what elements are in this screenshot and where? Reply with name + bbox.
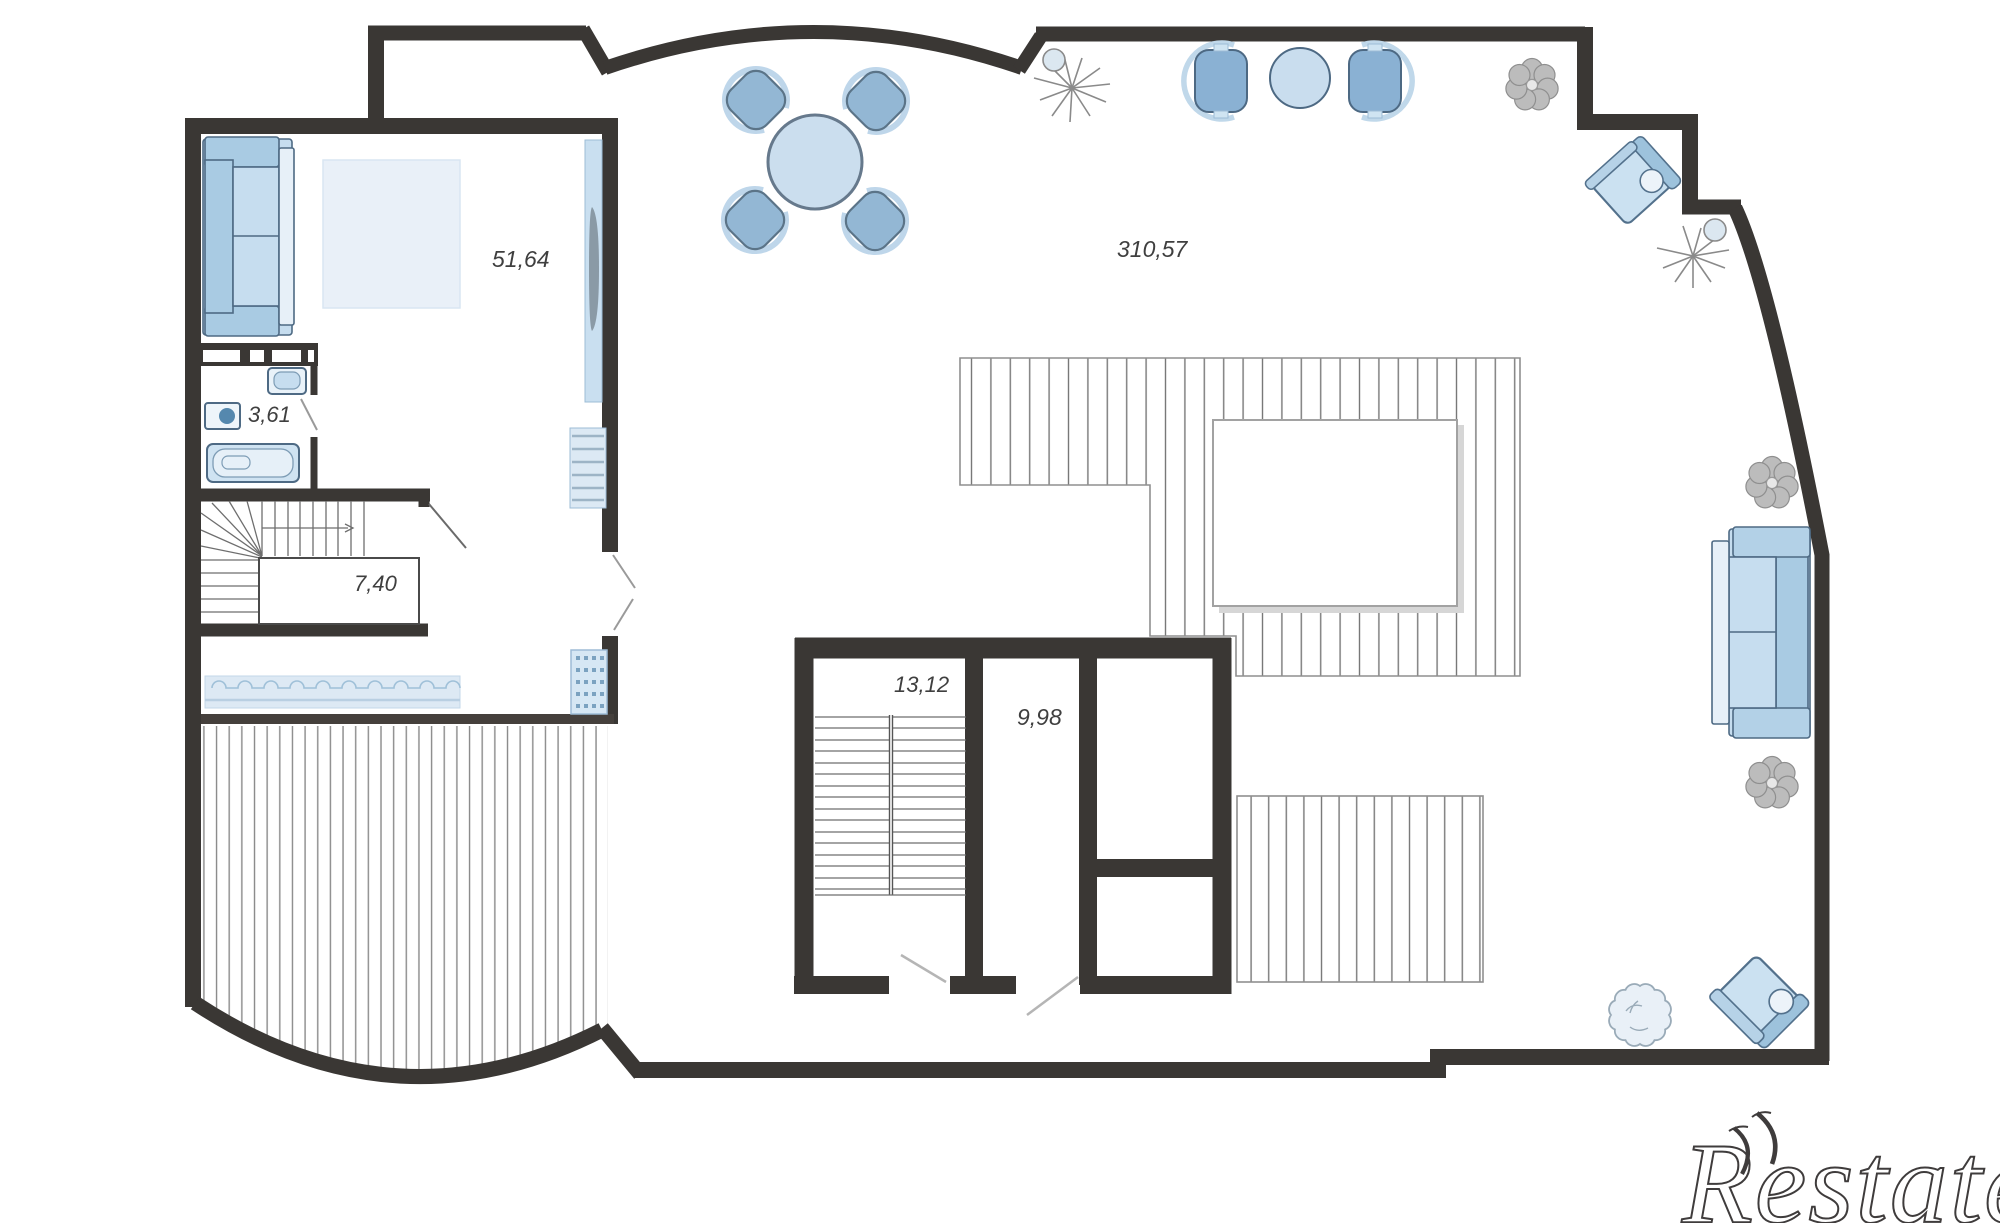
svg-text:9,98: 9,98 [1017, 704, 1062, 730]
svg-text:3,61: 3,61 [248, 402, 291, 427]
svg-text:7,40: 7,40 [354, 571, 398, 596]
svg-text:310,57: 310,57 [1117, 236, 1189, 262]
svg-text:13,12: 13,12 [894, 672, 949, 697]
svg-text:Restate: Restate [1681, 1120, 2000, 1223]
svg-text:51,64: 51,64 [492, 246, 550, 272]
